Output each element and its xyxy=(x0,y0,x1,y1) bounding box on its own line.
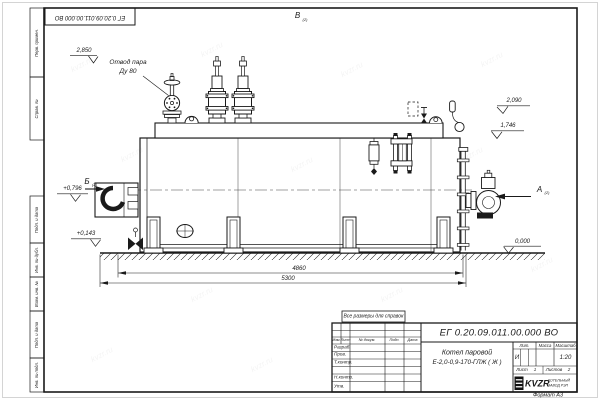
tb-header-podp: Подп. xyxy=(389,339,399,343)
tb-header-list: Лист xyxy=(341,339,351,343)
margin-label-inv-podl: Инв. № подл. xyxy=(35,362,39,388)
tb-row-razrab: Разраб. xyxy=(334,346,351,351)
pump-unit xyxy=(466,170,501,218)
level-0143: +0,143 xyxy=(77,231,96,237)
tb-sheet-label: Лист xyxy=(516,368,528,373)
tb-header-data: Дата xyxy=(407,339,417,343)
tb-row-nkontr: Н.контр. xyxy=(334,376,353,381)
top-designation-text: ЕГ 0.20.09.011.00.000 ВО xyxy=(55,14,125,20)
margin-label-vzam-inv: Взам. инв. № xyxy=(35,281,39,307)
tb-row-utv: Утв. xyxy=(334,384,344,389)
tb-row-tkontr: Т.контр. xyxy=(334,361,353,366)
tb-scale-value: 1:20 xyxy=(560,355,572,361)
tb-product-type: Е-2,0-0,9-170-ГЛЖ ( Ж ) xyxy=(432,359,501,365)
steam-valve xyxy=(163,74,181,124)
tb-header-doc: № докум. xyxy=(359,339,376,343)
tb-format-note: Формат А3 xyxy=(533,393,563,399)
tb-product-name: Котел паровой xyxy=(442,349,492,356)
tb-mass-header: Масса xyxy=(539,344,552,348)
margin-label-podp-data-1: Подп. и дата xyxy=(35,206,39,232)
tb-lit-value: И xyxy=(515,355,519,361)
kvzr-logo-icon xyxy=(515,377,524,391)
view-label-v: В xyxy=(295,12,300,20)
level-2850: 2,850 xyxy=(76,48,91,54)
tb-company-sub2: ЗАВОД РЭП xyxy=(548,384,568,388)
tb-scale-header: Масштаб xyxy=(555,344,575,348)
view-label-a-ref: (2) xyxy=(545,191,550,195)
margin-label-inv-dubl: Инв. № дубл. xyxy=(35,247,39,273)
dim-4860: 4860 xyxy=(292,266,305,272)
callout-leader xyxy=(143,76,169,96)
callout-steam-outlet-line2: Ду 80 xyxy=(120,68,137,75)
dim-5300: 5300 xyxy=(281,276,294,282)
reference-note: Все размеры для справок xyxy=(344,314,404,319)
level-0000: 0,000 xyxy=(515,239,530,245)
callout-steam-outlet-line1: Отвод пара xyxy=(109,60,146,67)
burner-unit xyxy=(95,183,143,250)
level-2090: 2,090 xyxy=(506,98,521,104)
view-label-b-ref: (2) xyxy=(92,183,97,187)
tb-sheet-value: 1 xyxy=(534,368,537,373)
boiler-shell xyxy=(129,138,472,252)
view-label-v-ref: (2) xyxy=(303,18,308,22)
view-label-b: Б xyxy=(84,178,89,186)
safety-valves xyxy=(206,57,254,124)
tb-company-sub1: КОТЕЛЬНЫЙ xyxy=(548,379,570,383)
drawing-sheet: kvzr.ru kvzr.ru kvzr.ru kvzr.ru kvzr.ru … xyxy=(0,0,600,400)
margin-label-sprav-no: Справ. № xyxy=(35,99,39,118)
margin-label-perv-primen: Перв. примен. xyxy=(35,29,39,57)
margin-label-podp-data-2: Подп. и дата xyxy=(35,321,39,347)
tb-designation: ЕГ 0.20.09.011.00.000 ВО xyxy=(440,328,559,338)
upper-drum xyxy=(155,123,443,138)
tb-sheets-value: 2 xyxy=(568,368,571,373)
ground-line xyxy=(100,253,545,260)
tb-sheets-label: Листов xyxy=(546,368,562,373)
tb-company-logo-text: KVZR xyxy=(525,379,550,388)
tb-row-prov: Пров. xyxy=(334,353,346,358)
level-1746: 1,746 xyxy=(500,123,515,129)
level-0796: +0,796 xyxy=(63,186,82,192)
tb-lit-header: Лит. xyxy=(519,344,529,348)
tb-header-izm: Изм. xyxy=(332,339,340,343)
drum-dome xyxy=(185,116,198,123)
view-label-a: А xyxy=(537,186,542,194)
